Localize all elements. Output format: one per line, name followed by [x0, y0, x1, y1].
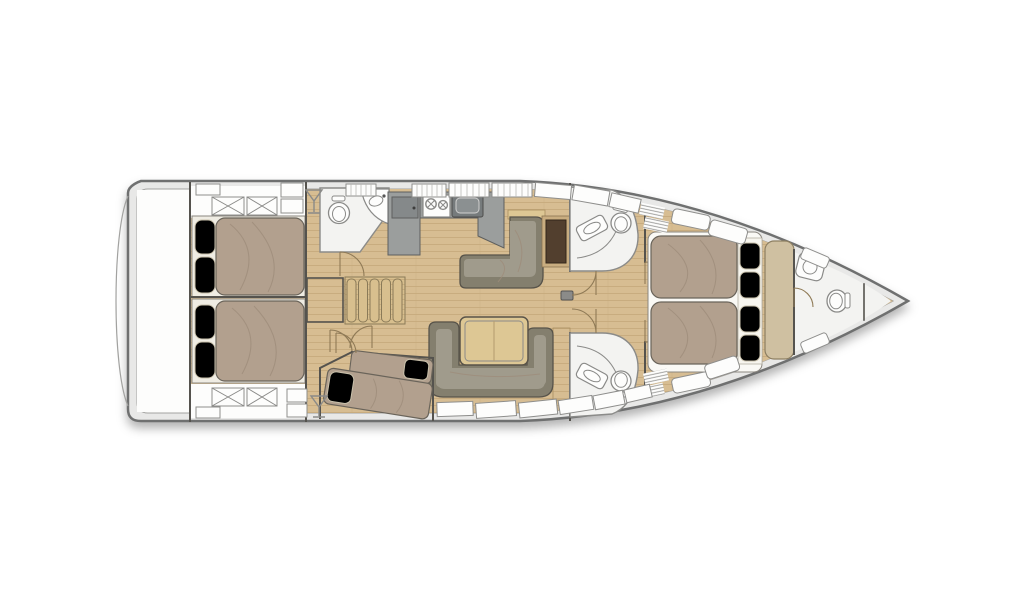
- yacht-floor-plan: [0, 0, 1024, 600]
- u-sofa-seat-bottom: [437, 368, 545, 389]
- pillow: [195, 342, 215, 378]
- pillow: [740, 335, 760, 361]
- stove-icon: [423, 195, 450, 217]
- pillow: [403, 359, 429, 381]
- swim-platform: [137, 190, 190, 412]
- pillow: [740, 243, 760, 269]
- double-bed: [192, 299, 305, 383]
- pillow: [326, 371, 354, 404]
- bow-head: [794, 247, 891, 354]
- swim-platform-arc: [116, 196, 128, 406]
- u-sofa-seat-right: [534, 335, 546, 385]
- owner-cabin: [639, 203, 794, 400]
- pillow: [195, 257, 215, 293]
- chaise-bench: [765, 241, 794, 359]
- dining-table: [460, 317, 528, 365]
- chart-table: [542, 216, 570, 267]
- pillow: [195, 305, 215, 339]
- pillow: [740, 306, 760, 332]
- pillow: [195, 220, 215, 254]
- floor-hatch: [561, 291, 573, 300]
- dinette-side-trim: [553, 328, 570, 400]
- fridge-icon: [392, 197, 418, 218]
- floor-plan-svg: [0, 0, 1024, 600]
- companionway-stairs: [345, 277, 405, 324]
- double-bed: [192, 216, 305, 297]
- salon-dinette: [429, 317, 570, 400]
- pillow: [740, 272, 760, 298]
